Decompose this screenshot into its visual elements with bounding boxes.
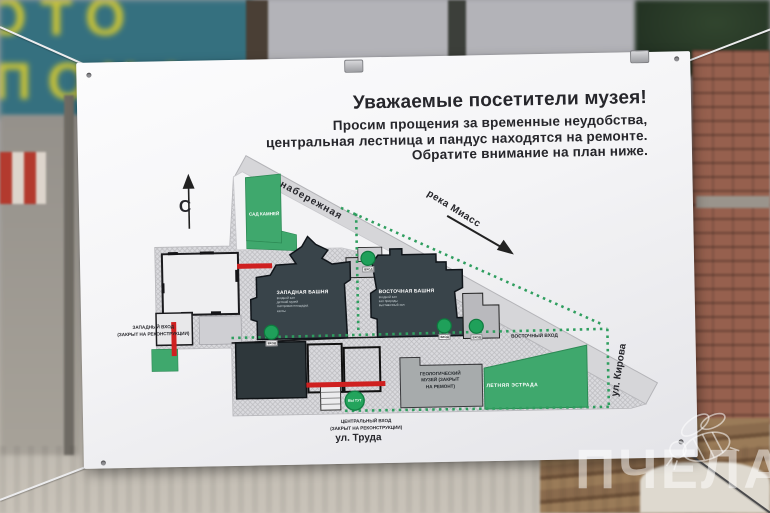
- site-plan: [76, 51, 698, 469]
- background-scaffold-bar: [696, 196, 770, 208]
- binder-clip-left: [344, 59, 363, 72]
- rock-garden-label: САД КАМНЕЙ: [246, 211, 282, 217]
- watermark-bee-icon: [640, 408, 765, 478]
- pin-entrance-east-icon: [469, 319, 483, 333]
- closed-bar-north: [237, 263, 272, 269]
- pin-entrance-north-label: ВХОД: [362, 266, 375, 272]
- street-label-truda: ул. Труда: [328, 432, 388, 444]
- west-tower-label-block: ЗАПАДНАЯ БАШНЯ входной зал детский музей…: [277, 289, 339, 313]
- background-brick-wall: [692, 50, 770, 424]
- pin-entrance-west-icon: [264, 325, 278, 339]
- west-entrance-label: ЗАПАДНЫЙ ВХОД (ЗАКРЫТ НА РЕКОНСТРУКЦИИ): [95, 323, 211, 338]
- pin-entrance-north-icon: [361, 251, 375, 265]
- east-tower-label-block: ВОСТОЧНАЯ БАШНЯ входной зал зал природы …: [379, 288, 441, 308]
- pin-entrance-west-label: ВХОД: [266, 340, 279, 346]
- central-entrance-label: ЦЕНТРАЛЬНЫЙ ВХОД (ЗАКРЫТ НА РЕКОНСТРУКЦИ…: [311, 417, 421, 432]
- grommet-top-left: [86, 73, 91, 78]
- geological-museum-label: ГЕОЛОГИЧЕСКИЙ МУЗЕЙ (ЗАКРЫТ НА РЕМОНТ): [402, 370, 478, 391]
- pin-entrance-south-icon: [437, 319, 451, 333]
- grommet-bottom-left: [101, 460, 106, 465]
- rock-garden-area: [245, 174, 281, 244]
- notice-poster: Уважаемые посетители музея! Просим проще…: [76, 51, 698, 469]
- background-striped-barrier: [0, 152, 46, 204]
- west-courtyard-building: [162, 253, 239, 315]
- pin-entrance-south-label: ВХОД: [438, 334, 451, 340]
- shop-sign-text-top: ОТО: [0, 0, 139, 48]
- binder-clip-right: [630, 50, 649, 63]
- pin-you-are-here-label: ВЫ ТУТ: [343, 398, 367, 402]
- background-scaffold-pole: [64, 95, 74, 455]
- grommet-top-right: [674, 56, 679, 61]
- photo-scene: ОТО ПОХА Уважаемые посетители музея! Про…: [0, 0, 770, 513]
- southwest-dark-block: [236, 342, 307, 399]
- pin-entrance-east-label: ВХОД: [470, 334, 483, 340]
- background-post-right: [448, 0, 466, 58]
- north-symbol: С: [179, 197, 192, 217]
- background-post-left: [246, 0, 268, 64]
